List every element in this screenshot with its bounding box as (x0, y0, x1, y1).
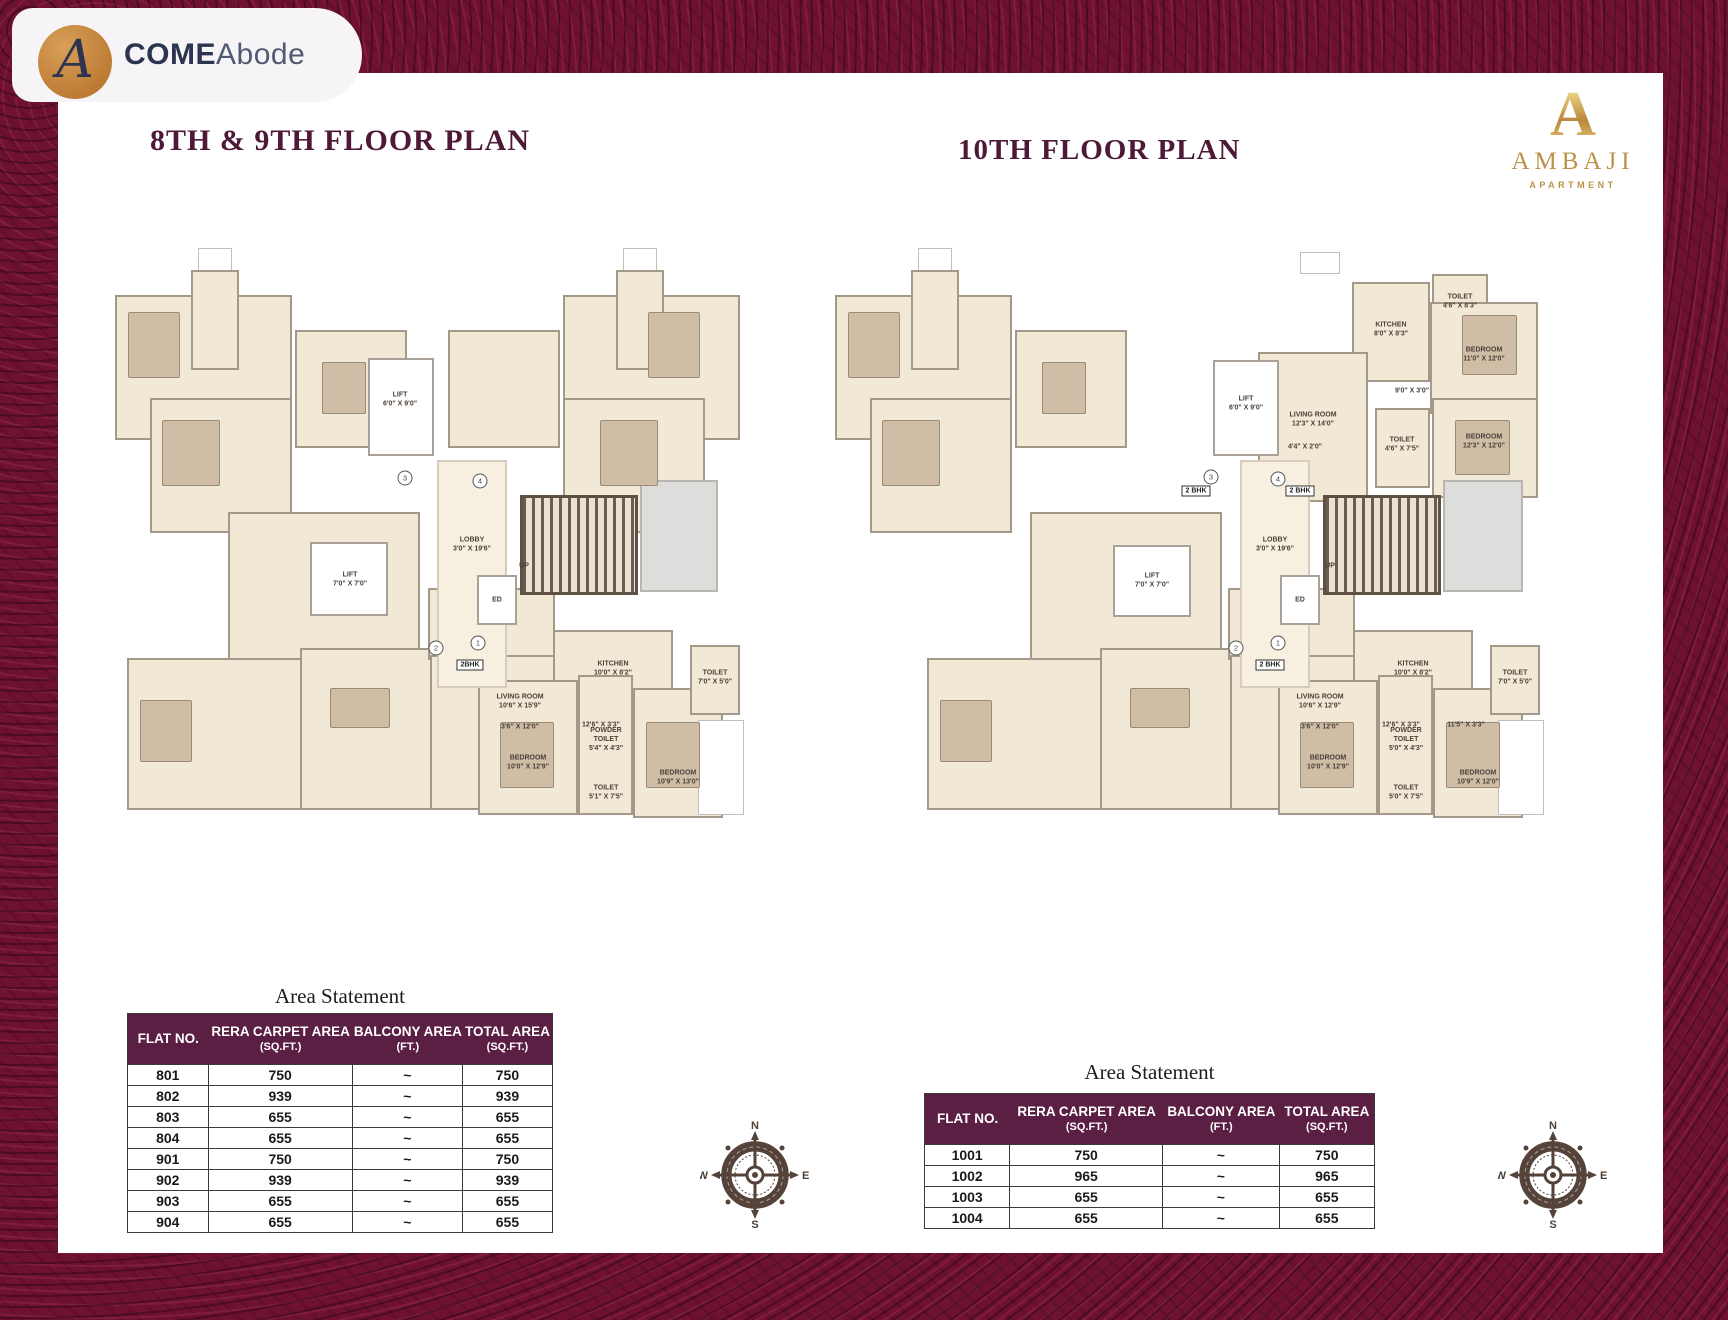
col-header-label: BALCONY AREA (1167, 1104, 1275, 1121)
table-cell-flat: 902 (128, 1169, 209, 1190)
table-cell-flat: 1003 (925, 1186, 1010, 1207)
table-cell-balcony: ~ (353, 1106, 463, 1127)
room-label: TOILET 4'6" X 7'5" (1385, 436, 1419, 454)
room-label: 3'6" X 12'0" (1301, 724, 1339, 733)
compass-south-label: S (751, 1219, 758, 1230)
compass-north-label: N (1549, 1120, 1557, 1132)
col-header-total: TOTAL AREA(SQ.FT.) (1280, 1094, 1374, 1144)
table-cell-rera: 750 (209, 1064, 353, 1085)
table-cell-total: 655 (463, 1211, 552, 1232)
table-cell-rera: 655 (209, 1190, 353, 1211)
table-cell-balcony: ~ (353, 1190, 463, 1211)
col-header-label: TOTAL AREA (1284, 1104, 1369, 1121)
terrace-block (1443, 480, 1523, 592)
table-cell-balcony: ~ (353, 1148, 463, 1169)
room-label: 11'5" X 3'3" (1447, 722, 1485, 731)
room-label: LIVING ROOM 10'6" X 12'9" (1296, 693, 1343, 711)
room-label: TOILET 4'6" X 8'3" (1443, 293, 1477, 311)
room-label: KITCHEN 8'0" X 8'3" (1374, 321, 1408, 339)
table-cell-flat: 1001 (925, 1144, 1010, 1165)
area-statement-title-right: Area Statement (924, 1060, 1375, 1085)
col-header-rera: RERA CARPET AREA(SQ.FT.) (1010, 1094, 1163, 1144)
col-header-unit: (FT.) (1210, 1121, 1233, 1135)
col-header-unit: (SQ.FT.) (1306, 1121, 1348, 1135)
table-cell-rera: 939 (209, 1169, 353, 1190)
compass-west-label: W (700, 1170, 709, 1182)
unit-type-tag: 2 BHK (1181, 486, 1210, 497)
area-table-right: FLAT NO. RERA CARPET AREA(SQ.FT.) BALCON… (924, 1093, 1375, 1229)
table-row: 904 655 ~ 655 (128, 1211, 552, 1232)
table-cell-rera: 655 (1010, 1186, 1163, 1207)
balcony-ledge (918, 248, 952, 272)
table-cell-flat: 1002 (925, 1165, 1010, 1186)
table-cell-balcony: ~ (353, 1085, 463, 1106)
table-cell-balcony: ~ (353, 1169, 463, 1190)
unit-number-marker: 4 (1271, 472, 1286, 487)
room-label: KITCHEN 10'0" X 8'2" (1394, 660, 1432, 678)
table-cell-balcony: ~ (1163, 1165, 1280, 1186)
brochure-page: A COMEAbode 8TH & 9TH FLOOR PLAN 10TH FL… (0, 0, 1728, 1320)
room-label: 4'4" X 2'0" (1288, 444, 1322, 453)
table-cell-flat: 901 (128, 1148, 209, 1169)
col-header-label: FLAT NO. (937, 1111, 998, 1128)
room-label: BEDROOM 12'3" X 12'0" (1463, 433, 1505, 451)
table-row: 802 939 ~ 939 (128, 1085, 552, 1106)
dining-table-icon (1042, 362, 1086, 414)
table-row: 1001 750 ~ 750 (925, 1144, 1374, 1165)
area-statement-title-left: Area Statement (127, 984, 553, 1009)
room-label: LIVING ROOM 12'3" X 14'0" (1289, 411, 1336, 429)
room-label: 9'0" X 3'0" (1395, 388, 1429, 397)
table-body: 801 750 ~ 750 802 939 ~ 939 803 655 ~ 65 (128, 1064, 552, 1232)
table-header-row: FLAT NO. RERA CARPET AREA(SQ.FT.) BALCON… (128, 1014, 552, 1064)
table-row: 801 750 ~ 750 (128, 1064, 552, 1085)
room-label: POWDER TOILET 5'0" X 4'3" (1389, 727, 1423, 753)
room-label: BEDROOM 10'9" X 12'0" (1457, 769, 1499, 787)
unit-type-tag: 2 BHK (1255, 660, 1284, 671)
table-cell-rera: 655 (1010, 1207, 1163, 1228)
room-label: LIFT 6'0" X 9'0" (1229, 395, 1263, 413)
area-table-left: FLAT NO. RERA CARPET AREA(SQ.FT.) BALCON… (127, 1013, 553, 1233)
col-header-rera: RERA CARPET AREA(SQ.FT.) (209, 1014, 353, 1064)
col-header-label: FLAT NO. (138, 1031, 199, 1048)
compass-north-label: N (751, 1120, 759, 1132)
col-header-total: TOTAL AREA(SQ.FT.) (463, 1014, 552, 1064)
bed-icon (848, 312, 900, 378)
table-row: 804 655 ~ 655 (128, 1127, 552, 1148)
table-cell-rera: 655 (209, 1211, 353, 1232)
room-label: ED (1295, 597, 1305, 606)
col-header-unit: (SQ.FT.) (1066, 1121, 1108, 1135)
table-cell-flat: 903 (128, 1190, 209, 1211)
table-cell-balcony: ~ (1163, 1207, 1280, 1228)
table-cell-flat: 803 (128, 1106, 209, 1127)
compass-east-label: E (1600, 1170, 1607, 1182)
compass-rose-icon: N E S W (700, 1120, 810, 1230)
compass-south-label: S (1549, 1219, 1556, 1230)
table-cell-total: 655 (1280, 1207, 1374, 1228)
col-header-label: RERA CARPET AREA (1017, 1104, 1156, 1121)
col-header-balcony: BALCONY AREA(FT.) (1163, 1094, 1280, 1144)
table-cell-balcony: ~ (1163, 1144, 1280, 1165)
col-header-label: BALCONY AREA (354, 1024, 462, 1041)
unit-type-tag: 2 BHK (1285, 486, 1314, 497)
table-row: 1004 655 ~ 655 (925, 1207, 1374, 1228)
compass-west-label: W (1498, 1170, 1507, 1182)
table-cell-total: 655 (1280, 1186, 1374, 1207)
compass-rose-icon: N E S W (1498, 1120, 1608, 1230)
table-row: 803 655 ~ 655 (128, 1106, 552, 1127)
bed-icon (882, 420, 940, 486)
table-cell-flat: 904 (128, 1211, 209, 1232)
table-cell-balcony: ~ (1163, 1186, 1280, 1207)
col-header-label: RERA CARPET AREA (211, 1024, 350, 1041)
unit-number-marker: 2 (1229, 641, 1244, 656)
table-cell-rera: 965 (1010, 1165, 1163, 1186)
table-cell-rera: 655 (209, 1106, 353, 1127)
room-label: LIFT 7'0" X 7'0" (1135, 572, 1169, 590)
table-row: 1003 655 ~ 655 (925, 1186, 1374, 1207)
unit-number-marker: 3 (1204, 470, 1219, 485)
room-label: BEDROOM 11'0" X 12'0" (1463, 346, 1505, 364)
table-cell-total: 939 (463, 1169, 552, 1190)
table-row: 1002 965 ~ 965 (925, 1165, 1374, 1186)
table-body: 1001 750 ~ 750 1002 965 ~ 965 1003 655 ~ (925, 1144, 1374, 1228)
table-cell-balcony: ~ (353, 1064, 463, 1085)
room-label: TOILET 5'0" X 7'5" (1389, 784, 1423, 802)
unit-number-marker: 1 (1271, 636, 1286, 651)
table-cell-rera: 655 (209, 1127, 353, 1148)
table-cell-total: 655 (463, 1127, 552, 1148)
staircase (1323, 495, 1441, 595)
col-header-unit: (FT.) (397, 1041, 420, 1055)
col-header-unit: (SQ.FT.) (487, 1041, 529, 1055)
col-header-flat: FLAT NO. (128, 1014, 209, 1064)
table-cell-total: 750 (463, 1064, 552, 1085)
col-header-balcony: BALCONY AREA(FT.) (353, 1014, 463, 1064)
room-label: BEDROOM 10'0" X 12'9" (1307, 754, 1349, 772)
table-cell-flat: 804 (128, 1127, 209, 1148)
table-cell-rera: 939 (209, 1085, 353, 1106)
table-cell-balcony: ~ (353, 1211, 463, 1232)
table-cell-total: 750 (463, 1148, 552, 1169)
table-cell-total: 939 (463, 1085, 552, 1106)
bed-icon (1462, 315, 1517, 375)
balcony-ledge (1300, 252, 1340, 274)
table-row: 903 655 ~ 655 (128, 1190, 552, 1211)
sofa-icon (1130, 688, 1190, 728)
table-cell-flat: 802 (128, 1085, 209, 1106)
table-cell-total: 655 (463, 1190, 552, 1211)
table-cell-total: 655 (463, 1106, 552, 1127)
table-cell-flat: 1004 (925, 1207, 1010, 1228)
terrace-outline (1498, 720, 1544, 815)
col-header-label: TOTAL AREA (465, 1024, 550, 1041)
table-header-row: FLAT NO. RERA CARPET AREA(SQ.FT.) BALCON… (925, 1094, 1374, 1144)
table-cell-total: 750 (1280, 1144, 1374, 1165)
room-label: TOILET 7'0" X 5'0" (1498, 669, 1532, 687)
table-row: 902 939 ~ 939 (128, 1169, 552, 1190)
table-cell-rera: 750 (1010, 1144, 1163, 1165)
col-header-flat: FLAT NO. (925, 1094, 1010, 1144)
room-label: UP (1325, 563, 1335, 572)
bed-icon (940, 700, 992, 762)
table-row: 901 750 ~ 750 (128, 1148, 552, 1169)
table-cell-balcony: ~ (353, 1127, 463, 1148)
table-cell-rera: 750 (209, 1148, 353, 1169)
col-header-unit: (SQ.FT.) (260, 1041, 302, 1055)
table-cell-flat: 801 (128, 1064, 209, 1085)
table-cell-total: 965 (1280, 1165, 1374, 1186)
room-block (911, 270, 959, 370)
compass-east-label: E (802, 1170, 809, 1182)
room-label: LOBBY 3'0" X 19'6" (1256, 536, 1294, 554)
